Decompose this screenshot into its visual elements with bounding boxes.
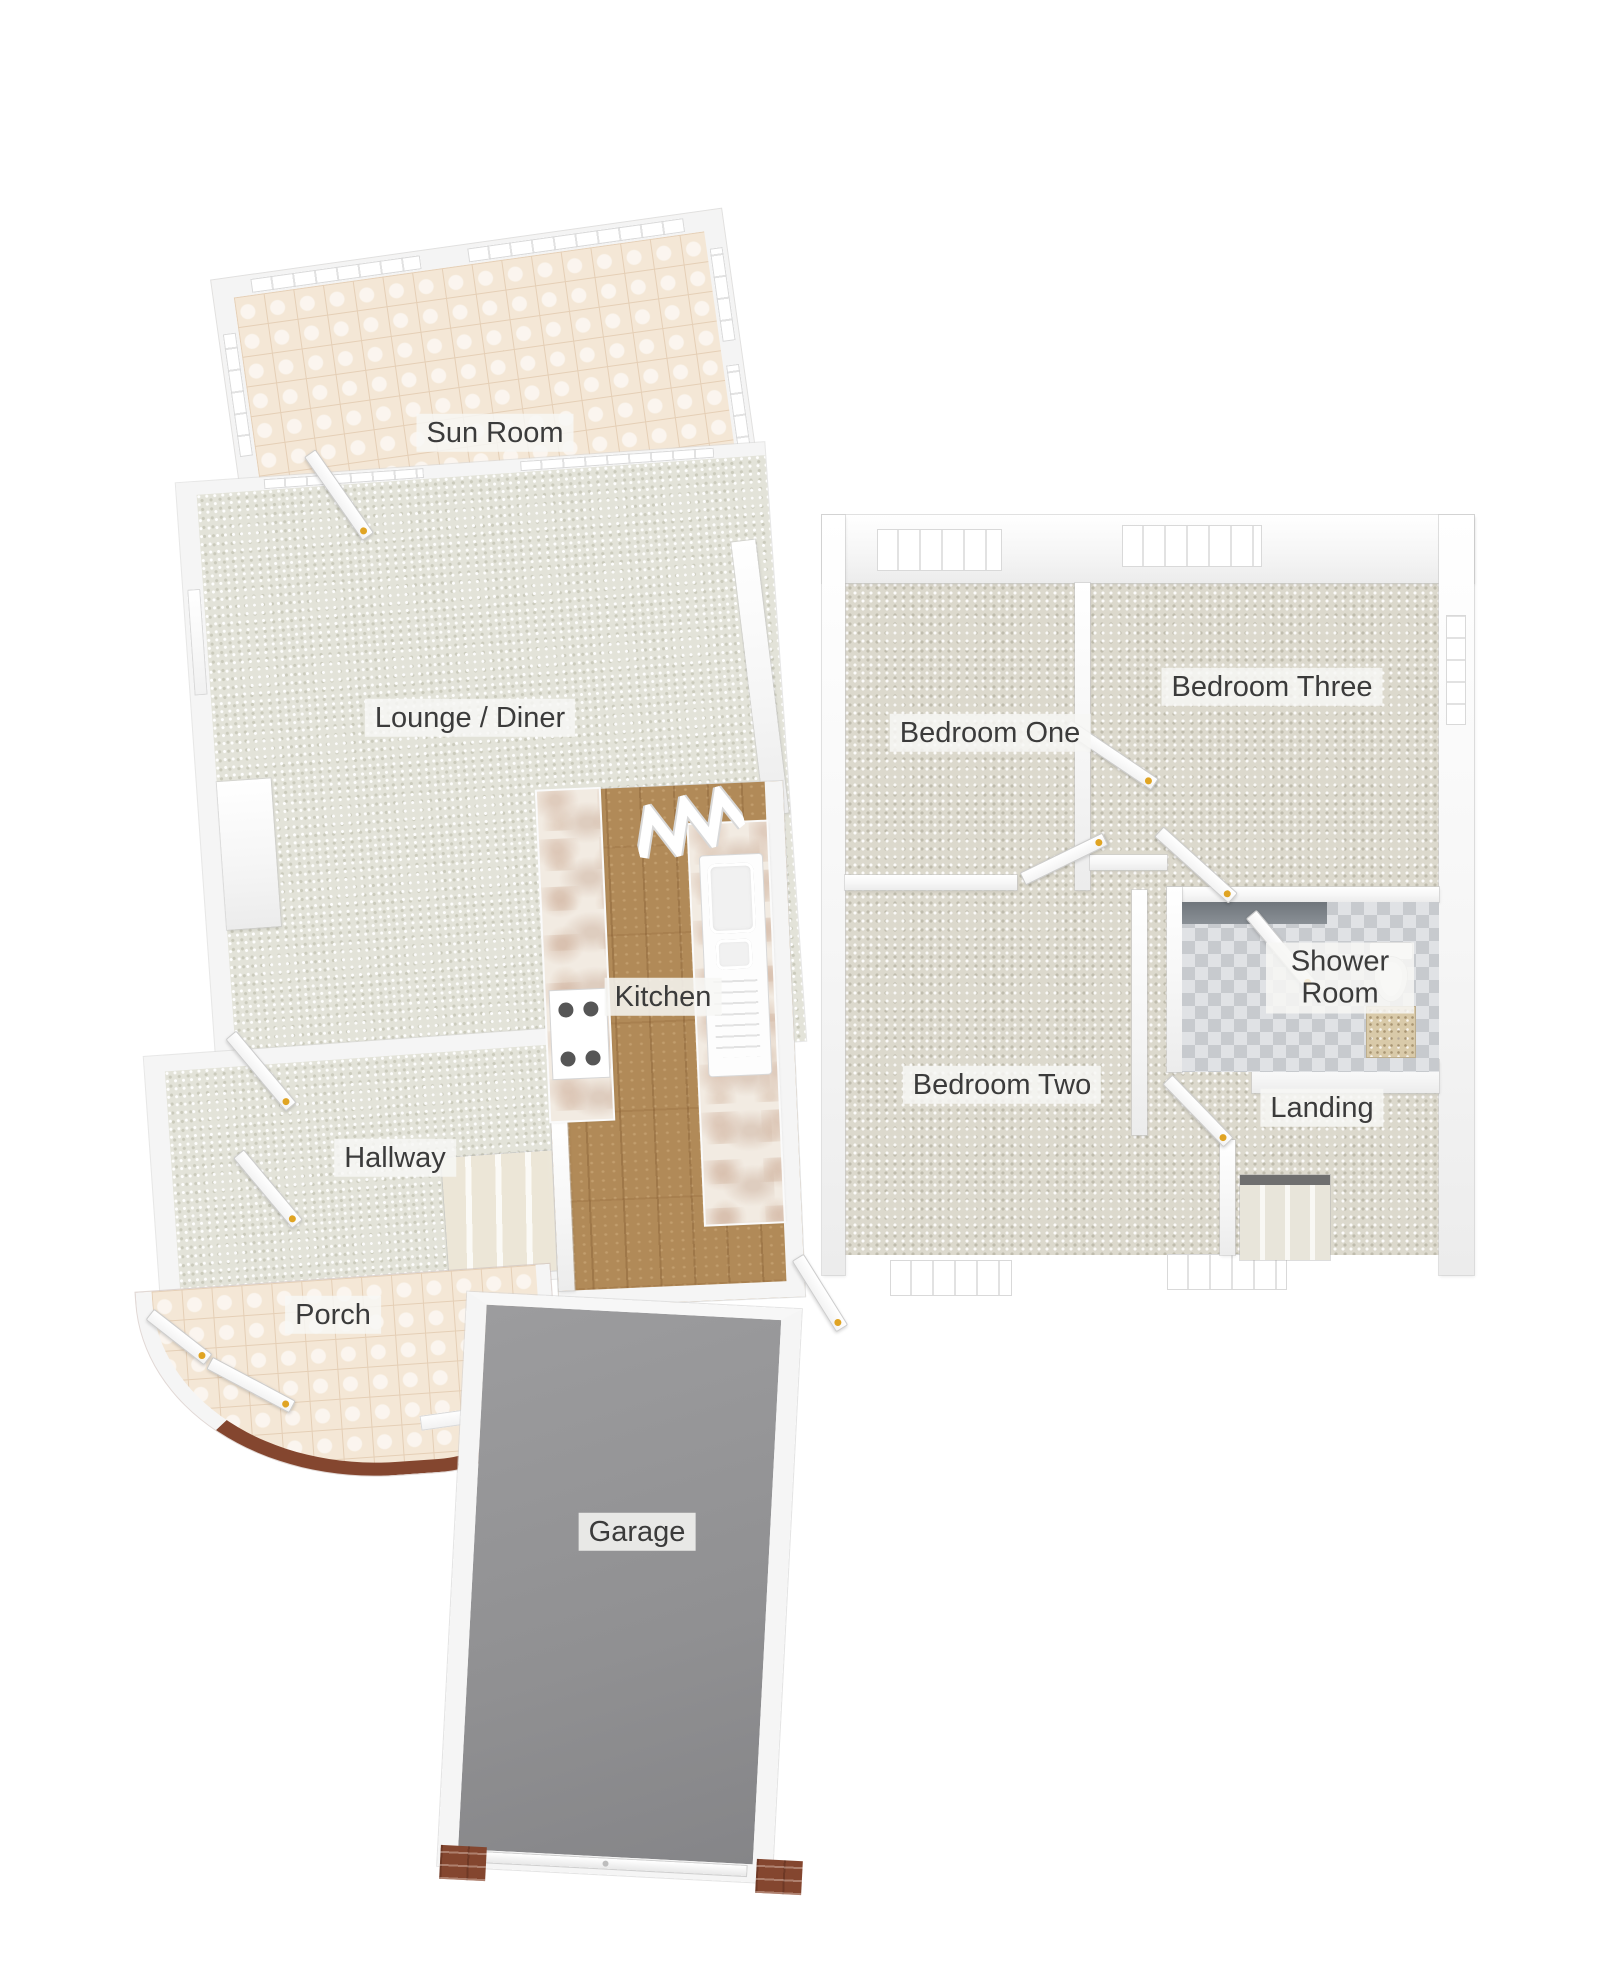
door-handle-icon bbox=[1144, 776, 1154, 786]
floorplan-canvas: Sun Room Lounge / Diner Kitchen Hallway … bbox=[0, 0, 1613, 1985]
brick-pier bbox=[755, 1859, 803, 1895]
door-handle-icon bbox=[281, 1097, 291, 1107]
sun-room-window bbox=[223, 333, 253, 457]
exterior-wall-left bbox=[822, 515, 845, 1275]
chimney-breast bbox=[217, 778, 281, 929]
door-handle-icon bbox=[1218, 1133, 1228, 1143]
wall-b1-b2 bbox=[845, 875, 1017, 890]
door-handle-icon bbox=[197, 1351, 207, 1361]
room-label-bedroom-two: Bedroom Two bbox=[903, 1066, 1101, 1104]
lounge-side-window bbox=[187, 589, 207, 695]
room-label-sun-room: Sun Room bbox=[416, 414, 573, 452]
vanity-basin bbox=[1367, 1007, 1415, 1057]
room-label-porch: Porch bbox=[285, 1296, 381, 1334]
room-label-shower-room: Shower Room bbox=[1266, 943, 1414, 1014]
kitchen-sink-drainer bbox=[700, 854, 772, 1076]
sun-room-window bbox=[467, 218, 685, 262]
room-label-garage: Garage bbox=[579, 1513, 696, 1551]
door-handle-icon bbox=[1222, 889, 1232, 899]
wall-b3-bottom bbox=[1090, 855, 1167, 870]
door-handle-icon bbox=[359, 526, 369, 536]
wall-b2-landing-lower bbox=[1220, 1140, 1235, 1255]
door-handle-icon bbox=[287, 1214, 297, 1224]
room-kitchen bbox=[537, 781, 805, 1307]
bedroom-one-window bbox=[877, 529, 1002, 571]
room-label-hallway: Hallway bbox=[334, 1139, 456, 1177]
door-handle-icon bbox=[1094, 838, 1103, 847]
room-garage bbox=[437, 1292, 802, 1884]
bedroom-three-window bbox=[1122, 525, 1262, 567]
bedroom-wing bbox=[822, 515, 1474, 1310]
garage-door bbox=[463, 1851, 746, 1876]
sun-room-window bbox=[710, 247, 736, 342]
bedroom-two-window bbox=[890, 1260, 1012, 1296]
door-handle-icon bbox=[281, 1399, 290, 1408]
wall-shower-top bbox=[1167, 887, 1439, 902]
room-label-bedroom-one: Bedroom One bbox=[890, 714, 1091, 752]
bedroom-three-side-window bbox=[1446, 615, 1466, 725]
room-label-bedroom-three: Bedroom Three bbox=[1162, 668, 1383, 706]
room-label-lounge-diner: Lounge / Diner bbox=[365, 699, 575, 737]
kitchen-hob bbox=[550, 989, 610, 1079]
room-label-kitchen: Kitchen bbox=[605, 978, 722, 1016]
brick-pier bbox=[439, 1845, 487, 1881]
sun-room-window bbox=[250, 255, 421, 293]
wall-shower-left bbox=[1167, 887, 1182, 1072]
room-label-landing: Landing bbox=[1260, 1089, 1383, 1127]
wall-b2-landing-upper bbox=[1132, 890, 1147, 1135]
door-handle-icon bbox=[833, 1318, 843, 1328]
staircase-landing bbox=[1240, 1175, 1330, 1260]
